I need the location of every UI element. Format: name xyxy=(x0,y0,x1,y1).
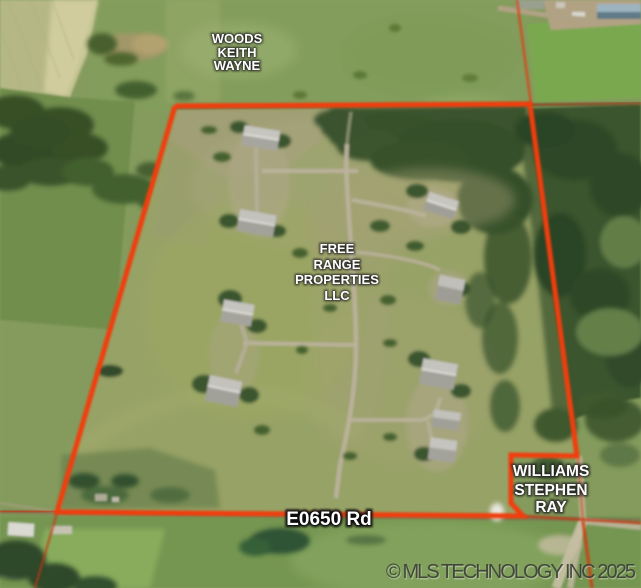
svg-text:© MLS TECHNOLOGY INC 2025: © MLS TECHNOLOGY INC 2025 xyxy=(386,561,636,583)
svg-text:E0650 Rd: E0650 Rd xyxy=(286,509,372,530)
svg-text:FREE: FREE xyxy=(320,241,355,256)
svg-text:RANGE: RANGE xyxy=(314,257,361,272)
svg-text:RAY: RAY xyxy=(535,499,567,516)
svg-text:PROPERTIES: PROPERTIES xyxy=(295,272,379,287)
svg-text:WAYNE: WAYNE xyxy=(214,58,261,73)
svg-text:WOODS: WOODS xyxy=(212,31,263,46)
svg-text:LLC: LLC xyxy=(324,288,350,303)
svg-text:WILLIAMS: WILLIAMS xyxy=(513,463,590,480)
svg-text:STEPHEN: STEPHEN xyxy=(514,482,587,499)
